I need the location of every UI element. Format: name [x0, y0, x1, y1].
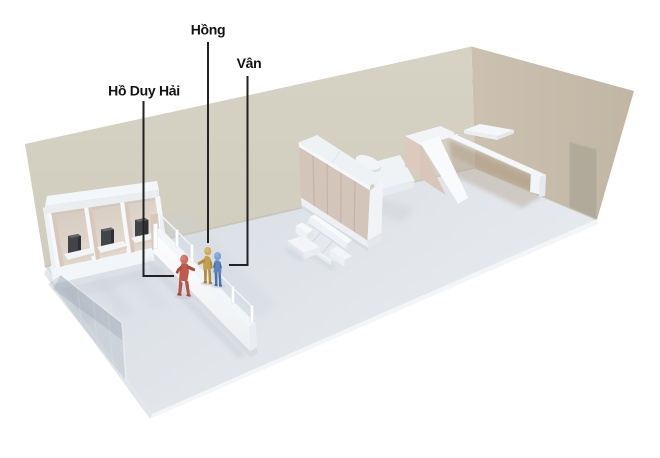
svg-text:Vân: Vân — [237, 55, 262, 71]
svg-text:Hồ Duy Hải: Hồ Duy Hải — [108, 83, 180, 99]
svg-text:Hồng: Hồng — [191, 22, 226, 38]
